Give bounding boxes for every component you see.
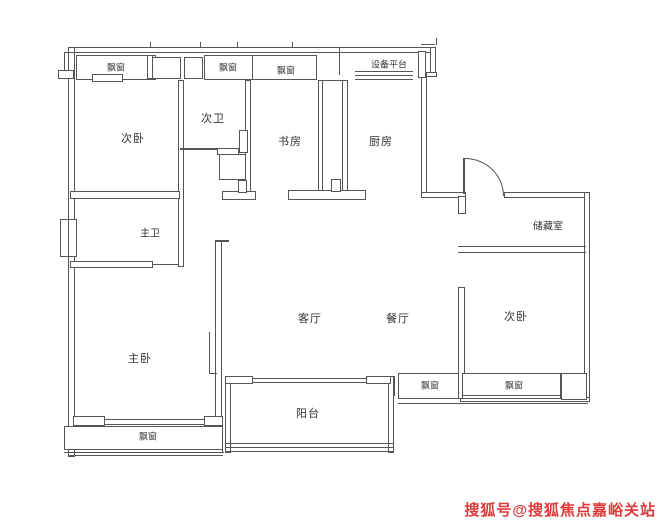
wall-stub bbox=[225, 376, 253, 384]
roof-tick bbox=[436, 38, 437, 45]
wall-notch bbox=[209, 332, 210, 374]
outer-wall-right bbox=[584, 192, 590, 402]
bay-outer-line bbox=[398, 403, 588, 404]
sliding-door-rail bbox=[253, 378, 366, 379]
duct-box bbox=[152, 57, 181, 79]
duct-box bbox=[184, 57, 203, 79]
corner-column-box bbox=[561, 373, 587, 400]
platform-wall-left bbox=[339, 48, 340, 75]
room-label-study: 书房 bbox=[278, 133, 302, 149]
storage-front-line bbox=[458, 252, 586, 253]
bay-outer-line bbox=[64, 452, 224, 453]
watermark-text: 搜狐号@搜狐焦点嘉峪关站 bbox=[464, 499, 656, 520]
roof-tick bbox=[150, 42, 151, 48]
bay-corner-line-h bbox=[64, 52, 156, 53]
bay-window-label: 飘窗 bbox=[107, 61, 125, 74]
kitchen-right-outer-wall bbox=[421, 73, 427, 198]
bay-window-label: 飘窗 bbox=[219, 61, 237, 74]
storage-front-line bbox=[458, 246, 586, 247]
room-label-equipment-platform: 设备平台 bbox=[371, 58, 407, 71]
wall-bedroomTL-bath bbox=[178, 80, 184, 267]
wall-pier bbox=[288, 190, 366, 200]
window-rail bbox=[105, 419, 204, 420]
window-rail bbox=[105, 424, 204, 425]
room-label-storage: 储藏室 bbox=[533, 218, 563, 233]
wall-stub bbox=[92, 74, 123, 82]
wall-notch bbox=[222, 420, 223, 453]
wall-stub bbox=[323, 80, 342, 81]
floor-plan-canvas: 次卧 次卫 书房 厨房 设备平台 储藏室 主卫 主卧 客厅 餐厅 次卧 阳台 飘… bbox=[0, 0, 660, 528]
balcony-wall-left bbox=[225, 376, 231, 453]
roof-tick bbox=[200, 42, 201, 48]
bay-outer-line bbox=[68, 455, 223, 456]
roof-tick bbox=[237, 42, 238, 48]
room-label-bath-second: 次卫 bbox=[201, 110, 225, 126]
wall-stub bbox=[215, 240, 229, 242]
balcony-railing bbox=[225, 451, 394, 452]
wall-stub bbox=[366, 376, 391, 384]
room-label-dining: 餐厅 bbox=[386, 310, 410, 326]
bathM-wall-bottom bbox=[70, 261, 153, 268]
door-threshold bbox=[153, 264, 179, 265]
door-jamb bbox=[239, 130, 248, 153]
side-window-mullion bbox=[68, 220, 69, 256]
wall-notch bbox=[209, 373, 217, 374]
kitchen-wall-left bbox=[342, 80, 348, 198]
platform-wall-right bbox=[418, 51, 426, 78]
shaft-box bbox=[219, 154, 246, 180]
room-label-bedroom-top-left: 次卧 bbox=[121, 130, 145, 146]
room-label-bedroom-master: 主卧 bbox=[128, 350, 152, 366]
balcony-railing bbox=[225, 447, 394, 448]
wall-pier bbox=[238, 180, 247, 193]
wall-pier bbox=[331, 179, 341, 192]
balcony-railing bbox=[225, 443, 394, 444]
room-label-kitchen: 厨房 bbox=[369, 133, 393, 149]
wall-notch bbox=[393, 376, 395, 396]
wall-stub bbox=[58, 70, 74, 79]
bedroomTL-wall-bottom bbox=[70, 191, 180, 199]
wall-pier bbox=[458, 196, 466, 214]
bay-outer-line bbox=[204, 52, 253, 53]
roof-tick bbox=[292, 42, 293, 48]
living-wall-left bbox=[215, 240, 222, 422]
bay-window-label: 飘窗 bbox=[421, 379, 439, 392]
bay-inner-line bbox=[462, 395, 561, 396]
roof-tick bbox=[421, 44, 435, 45]
room-label-bedroom-right: 次卧 bbox=[504, 308, 528, 324]
sliding-door-rail bbox=[253, 382, 366, 383]
room-label-bath-master: 主卫 bbox=[140, 225, 160, 240]
room-label-living: 客厅 bbox=[298, 310, 322, 326]
wall-stub bbox=[204, 416, 223, 426]
entry-wall-right-segment bbox=[504, 192, 590, 198]
bay-window-label: 飘窗 bbox=[277, 64, 295, 77]
bay-outer-line bbox=[252, 52, 317, 53]
wall-stub bbox=[73, 416, 105, 426]
bay-window-label: 飘窗 bbox=[505, 379, 523, 392]
study-wall-right bbox=[318, 80, 323, 198]
kitchen-window bbox=[355, 71, 413, 80]
entry-door-swing-arc bbox=[465, 158, 504, 196]
bay-window-label: 飘窗 bbox=[139, 430, 157, 443]
room-label-balcony: 阳台 bbox=[296, 405, 320, 421]
